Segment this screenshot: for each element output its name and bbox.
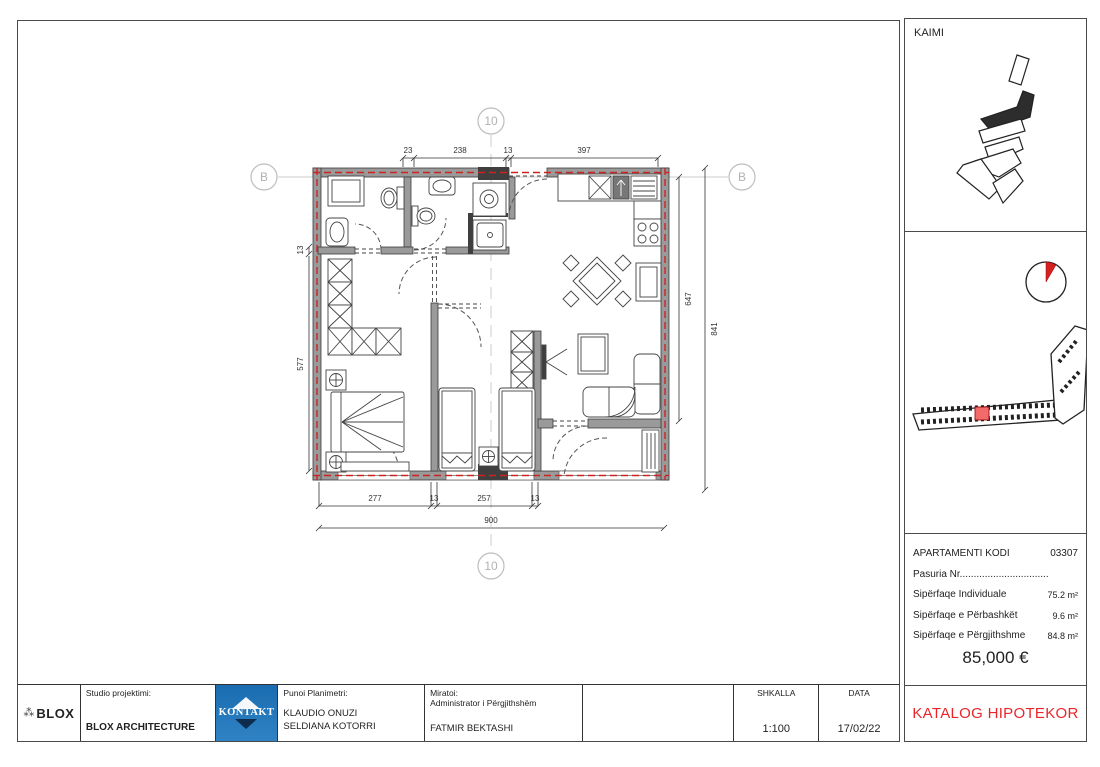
master-bedroom-furniture xyxy=(326,259,409,472)
punoi-name-1: KLAUDIO ONUZI xyxy=(283,708,419,721)
data-label: DATA xyxy=(824,688,894,698)
shkalla-value: 1:100 xyxy=(734,723,818,735)
drawing-frame: 10 10 B B xyxy=(17,20,900,742)
kontakt-logo-text: KONTAKT xyxy=(219,707,275,718)
right-panel: KAIMI xyxy=(904,18,1087,742)
grid-label-b-right: B xyxy=(738,170,746,184)
site-plan-buildings xyxy=(957,55,1034,203)
punoi-cell: Punoi Planimetri: KLAUDIO ONUZI SELDIANA… xyxy=(278,685,425,741)
bedroom2-furniture xyxy=(439,331,535,471)
surface-shared-value: 9.6 m² xyxy=(1052,606,1078,627)
location-svg xyxy=(905,232,1086,533)
balcony-radiator xyxy=(642,430,659,472)
location-section xyxy=(905,231,1086,533)
apartment-info: APARTAMENTI KODI 03307 Pasuria Nr.......… xyxy=(905,533,1086,685)
data-cell: DATA 17/02/22 xyxy=(819,685,899,741)
catalog-section: KATALOG HIPOTEKOR xyxy=(905,685,1086,741)
kontakt-logo-icon-bottom xyxy=(235,719,257,729)
dim-top-23: 23 xyxy=(404,146,413,155)
dim-bottom-13b: 13 xyxy=(531,494,540,503)
blox-logo-cell: ⁂ BLOX xyxy=(18,685,81,741)
surface-individual-label: Sipërfaqe Individuale xyxy=(913,585,1006,606)
dim-total-900: 900 xyxy=(484,516,498,525)
apartment-code-label: APARTAMENTI KODI xyxy=(913,544,1010,565)
punoi-label: Punoi Planimetri: xyxy=(283,688,419,698)
bath2-fixtures xyxy=(412,177,506,250)
studio-label: Studio projektimi: xyxy=(86,688,210,698)
floor-plan-svg: 10 10 B B xyxy=(18,21,899,684)
dim-top-238: 238 xyxy=(453,146,467,155)
kaimi-section: KAIMI xyxy=(905,19,1086,231)
catalog-label: KATALOG HIPOTEKOR xyxy=(912,705,1078,722)
title-block: ⁂ BLOX Studio projektimi: BLOX ARCHITECT… xyxy=(18,684,899,741)
dim-top-397: 397 xyxy=(577,146,591,155)
kaimi-label: KAIMI xyxy=(914,27,944,39)
dim-left-577: 577 xyxy=(296,357,305,371)
punoi-name-2: SELDIANA KOTORRI xyxy=(283,721,419,734)
shkalla-cell: SHKALLA 1:100 xyxy=(734,685,819,741)
living-room-furniture xyxy=(542,334,660,417)
grid-label-10-bottom: 10 xyxy=(484,559,498,573)
blox-logo-icon: ⁂ xyxy=(23,708,34,719)
studio-value: BLOX ARCHITECTURE xyxy=(86,722,195,733)
pasuria-line: Pasuria Nr..............................… xyxy=(913,565,1049,586)
dining-table xyxy=(563,255,631,307)
apartment-code-value: 03307 xyxy=(1050,544,1078,565)
data-value: 17/02/22 xyxy=(819,723,899,735)
site-plan-svg xyxy=(905,19,1086,231)
blox-logo-text: BLOX xyxy=(36,706,74,721)
dim-bottom-277: 277 xyxy=(368,494,382,503)
grid-label-10-top: 10 xyxy=(484,114,498,128)
shkalla-label: SHKALLA xyxy=(739,688,813,698)
bath1-fixtures xyxy=(326,176,404,246)
highlighted-unit xyxy=(975,407,989,420)
empty-cell xyxy=(583,685,735,741)
dim-top-13: 13 xyxy=(504,146,513,155)
miratoi-name: FATMIR BEKTASHI xyxy=(430,723,513,734)
dim-left-13: 13 xyxy=(296,245,305,254)
miratoi-role: Administrator i Përgjithshëm xyxy=(430,698,577,708)
dim-bottom-257: 257 xyxy=(477,494,491,503)
grid-label-b-left: B xyxy=(260,170,268,184)
catalog-sheet: 10 10 B B xyxy=(0,0,1100,767)
price: 85,000 € xyxy=(913,648,1078,668)
studio-cell: Studio projektimi: BLOX ARCHITECTURE xyxy=(81,685,216,741)
miratoi-cell: Miratoi: Administrator i Përgjithshëm FA… xyxy=(425,685,583,741)
building-strip xyxy=(913,326,1086,430)
surface-total-value: 84.8 m² xyxy=(1047,626,1078,647)
kontakt-logo-cell: KONTAKT xyxy=(216,685,279,741)
orientation-dial xyxy=(1026,262,1066,302)
miratoi-label: Miratoi: xyxy=(430,688,577,698)
dim-bottom-13a: 13 xyxy=(430,494,439,503)
surface-total-label: Sipërfaqe e Përgjithshme xyxy=(913,626,1025,647)
surface-individual-value: 75.2 m² xyxy=(1047,585,1078,606)
dim-right-647: 647 xyxy=(684,292,693,306)
dim-right-841: 841 xyxy=(710,322,719,336)
floor-plan-area: 10 10 B B xyxy=(18,21,899,684)
surface-shared-label: Sipërfaqe e Përbashkët xyxy=(913,606,1018,627)
